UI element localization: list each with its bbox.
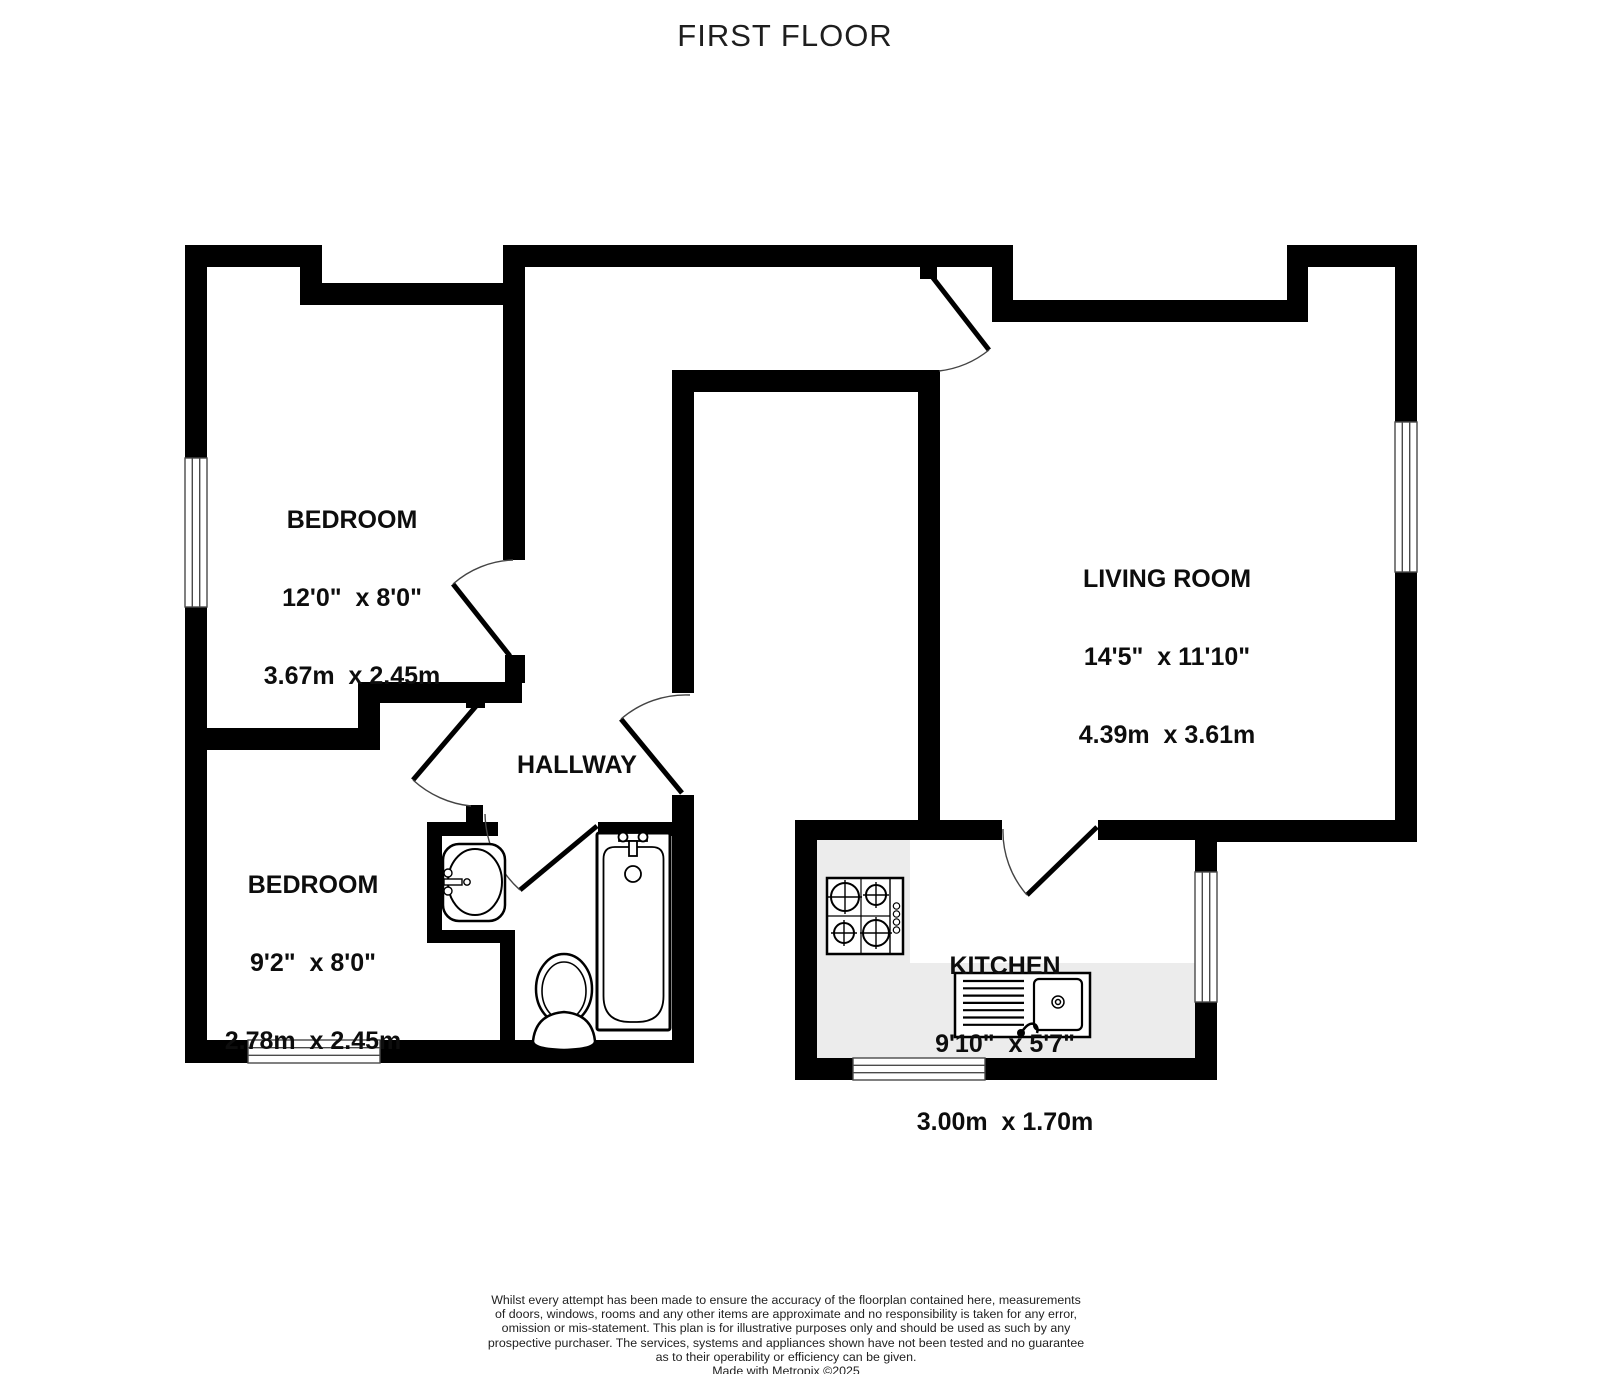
room-dims-imperial: 14'5" x 11'10": [1079, 644, 1256, 670]
bathtub-icon: [597, 833, 670, 1031]
page-title: FIRST FLOOR: [677, 18, 892, 54]
disclaimer-line: prospective purchaser. The services, sys…: [488, 1336, 1084, 1350]
room-dims-imperial: 12'0" x 8'0": [264, 585, 441, 611]
toilet-icon: [533, 954, 595, 1050]
disclaimer-line: omission or mis-statement. This plan is …: [488, 1321, 1084, 1335]
disclaimer-line: Whilst every attempt has been made to en…: [488, 1293, 1084, 1307]
window-kitchen-right: [1195, 872, 1217, 1002]
room-label-livingroom: LIVING ROOM 14'5" x 11'10" 4.39m x 3.61m: [1079, 514, 1256, 800]
door-entrance-livingroom: [930, 274, 989, 371]
disclaimer: Whilst every attempt has been made to en…: [488, 1293, 1084, 1374]
room-label-kitchen: KITCHEN 9'10" x 5'7" 3.00m x 1.70m: [917, 901, 1094, 1187]
room-dims-metric: 2.78m x 2.45m: [225, 1028, 402, 1054]
room-name: LIVING ROOM: [1079, 566, 1256, 592]
door-kitchen: [1003, 827, 1097, 895]
room-label-bedroom2: BEDROOM 9'2" x 8'0" 2.78m x 2.45m: [225, 820, 402, 1106]
room-name: BEDROOM: [264, 507, 441, 533]
hand-basin-icon: [443, 844, 505, 921]
disclaimer-line: as to their operability or efficiency ca…: [488, 1350, 1084, 1364]
hob-icon: [827, 878, 903, 954]
room-label-hallway: HALLWAY: [517, 700, 637, 830]
room-name: KITCHEN: [917, 953, 1094, 979]
room-dims-metric: 3.67m x 2.45m: [264, 663, 441, 689]
room-dims-metric: 4.39m x 3.61m: [1079, 722, 1256, 748]
window-bedroom1-left: [185, 458, 207, 607]
room-name: HALLWAY: [517, 752, 637, 778]
window-livingroom-right: [1395, 422, 1417, 572]
floorplan-drawing: [0, 0, 1600, 1374]
door-bedroom1: [453, 560, 513, 656]
room-name: BEDROOM: [225, 872, 402, 898]
floorplan-page: FIRST FLOOR BEDROOM 12'0" x 8'0" 3.67m x…: [0, 0, 1600, 1374]
room-dims-metric: 3.00m x 1.70m: [917, 1109, 1094, 1135]
disclaimer-credit: Made with Metropix ©2025: [488, 1364, 1084, 1374]
disclaimer-line: of doors, windows, rooms and any other i…: [488, 1307, 1084, 1321]
room-dims-imperial: 9'2" x 8'0": [225, 950, 402, 976]
room-label-bedroom1: BEDROOM 12'0" x 8'0" 3.67m x 2.45m: [264, 455, 441, 741]
room-dims-imperial: 9'10" x 5'7": [917, 1031, 1094, 1057]
